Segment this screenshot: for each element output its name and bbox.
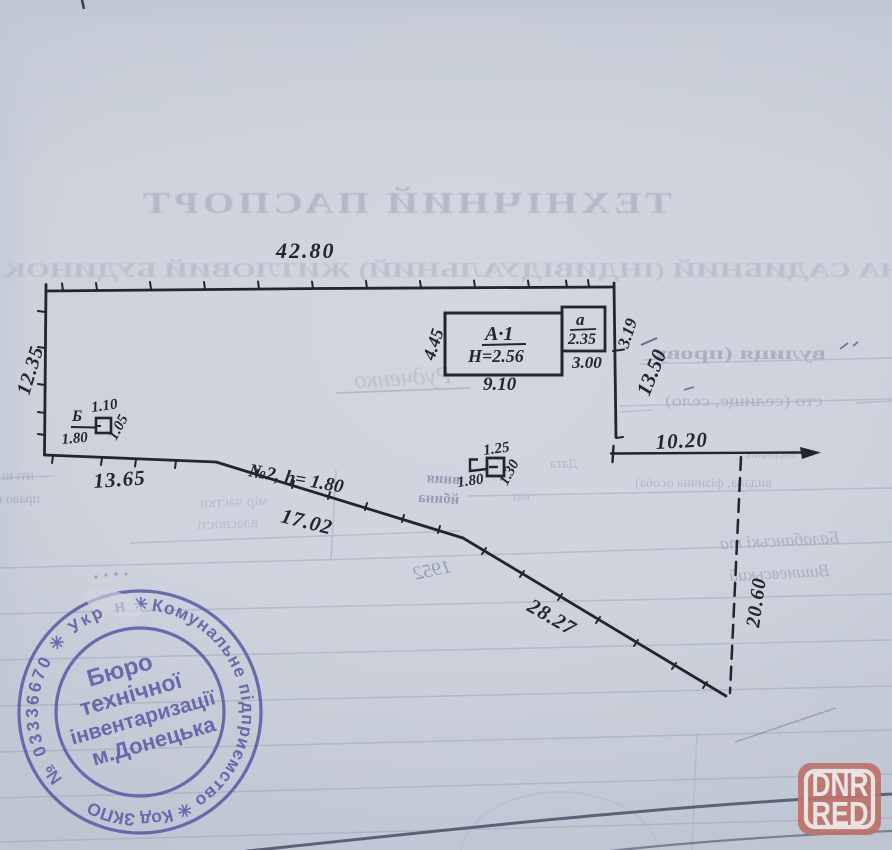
svg-text:Б: Б — [71, 408, 82, 425]
svg-text:НА САДИБНИЙ (ІНДИВІДУАЛЬНИЙ) Ж: НА САДИБНИЙ (ІНДИВІДУАЛЬНИЙ) ЖИТЛОВИЙ БУ… — [3, 258, 892, 282]
svg-text:код: код — [513, 489, 530, 503]
svg-text:йбина: йбина — [417, 490, 459, 508]
svg-text:Дата: Дата — [549, 457, 578, 472]
svg-text:Н=2.56: Н=2.56 — [467, 346, 524, 366]
svg-text:3.00: 3.00 — [571, 353, 602, 372]
svg-text:мір частки: мір частки — [200, 493, 268, 511]
svg-text:9.10: 9.10 — [483, 374, 517, 395]
svg-text:2.35: 2.35 — [567, 331, 596, 348]
svg-text:а: а — [576, 310, 585, 329]
svg-text:1.80: 1.80 — [61, 430, 89, 448]
svg-text:RED: RED — [812, 795, 869, 832]
svg-text:право вл: право вл — [0, 492, 40, 507]
svg-text:власності: власності — [197, 515, 258, 533]
svg-text:ТЕХНІЧНИЙ ПАСПОРТ: ТЕХНІЧНИЙ ПАСПОРТ — [139, 185, 672, 220]
svg-text:нті ш: нті ш — [2, 469, 34, 484]
svg-text:вулиця (прову: вулиця (прову — [654, 343, 826, 363]
svg-text:Видавник: Видавник — [746, 447, 796, 461]
svg-text:видана, фізична особа): видана, фізична особа) — [635, 476, 772, 491]
svg-text:13.65: 13.65 — [93, 465, 147, 493]
svg-text:вния: вния — [426, 470, 460, 488]
svg-text:А·1: А·1 — [483, 323, 513, 345]
svg-text:сто (селище, село): сто (селище, село) — [665, 393, 823, 410]
svg-text:10.20: 10.20 — [655, 427, 708, 454]
svg-text:42.80: 42.80 — [275, 238, 336, 263]
